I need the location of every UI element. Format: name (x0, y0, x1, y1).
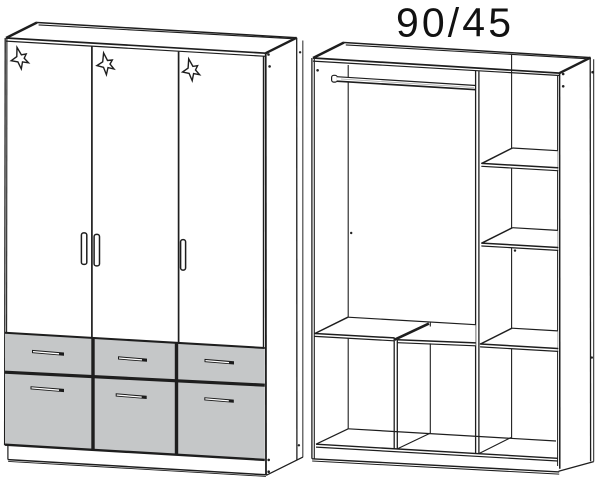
svg-text:90/45: 90/45 (396, 0, 514, 45)
